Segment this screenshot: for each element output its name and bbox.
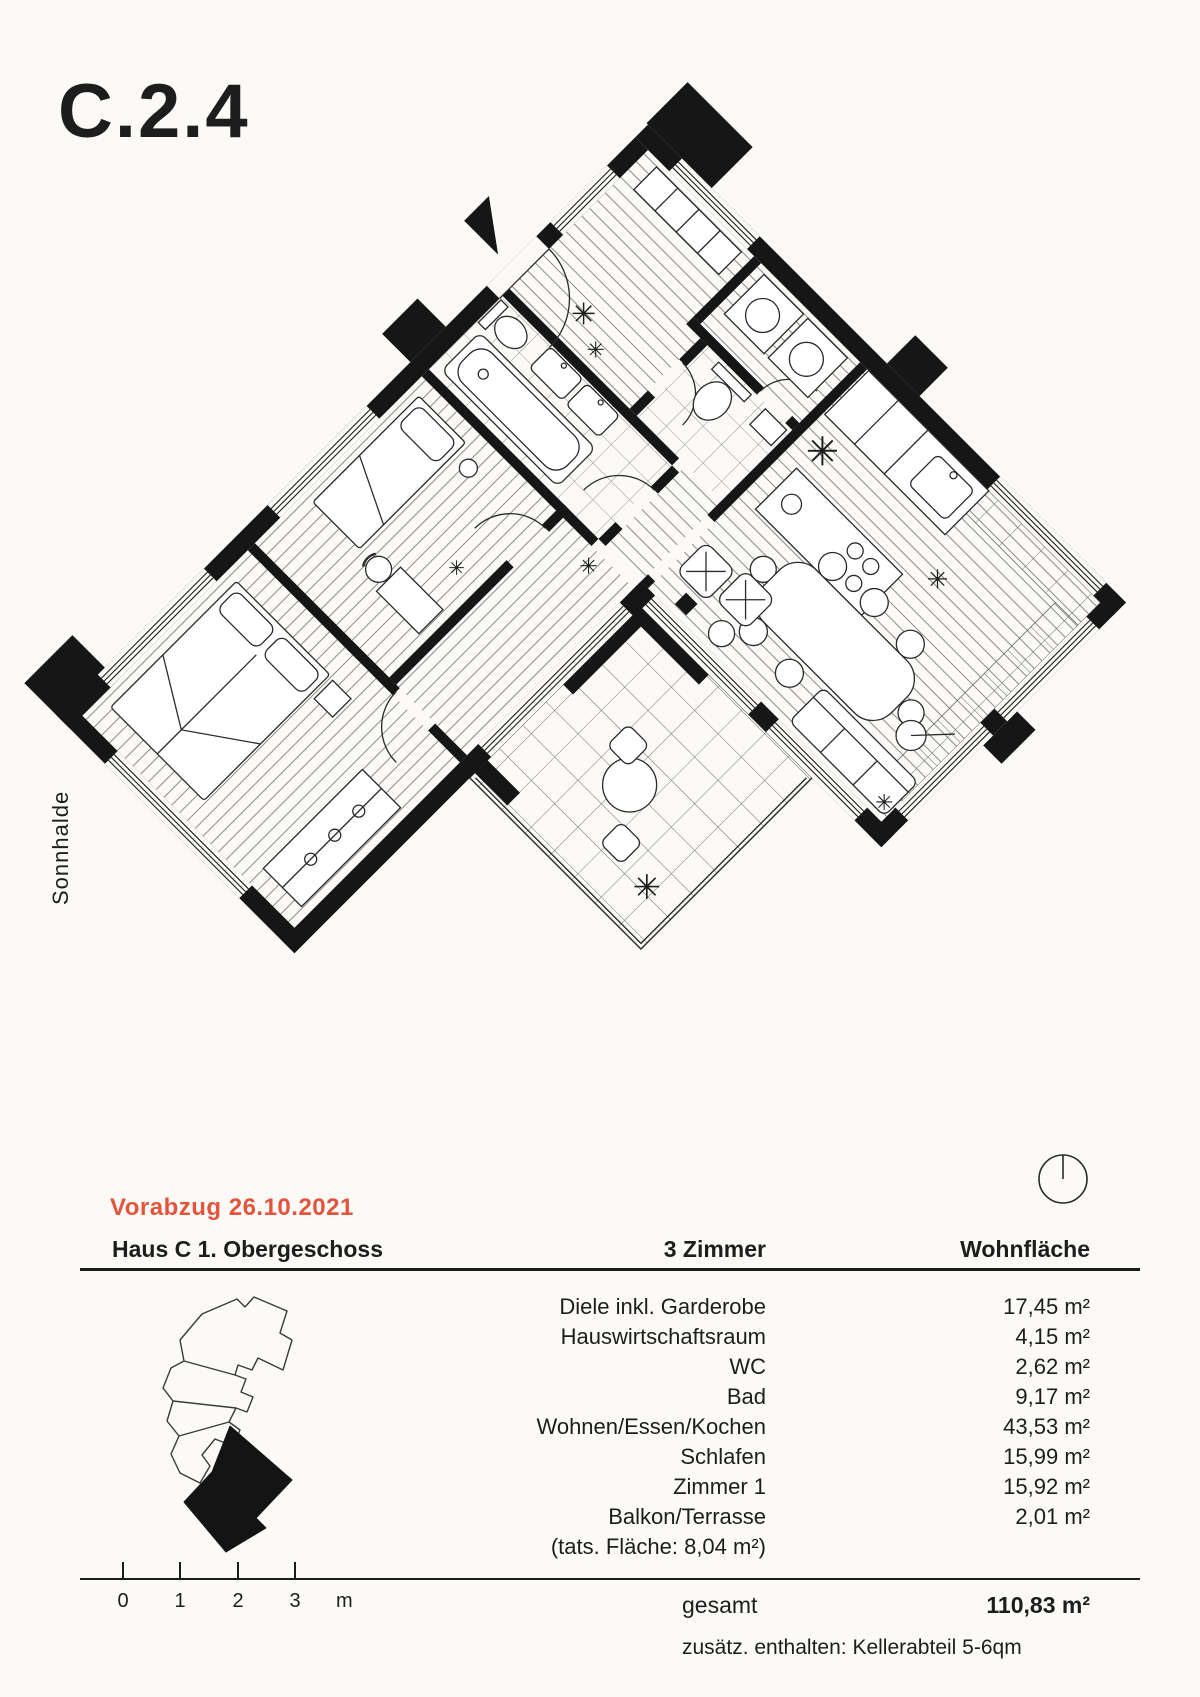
scale-tick bbox=[179, 1562, 181, 1578]
scale-label: 1 bbox=[168, 1590, 192, 1613]
room-row-label: Wohnen/Essen/Kochen bbox=[360, 1414, 766, 1440]
room-row-value: 15,99 m² bbox=[890, 1444, 1090, 1470]
room-row-label: Balkon/Terrasse bbox=[360, 1504, 766, 1530]
scale-label: 2 bbox=[226, 1590, 250, 1613]
scale-unit: m bbox=[336, 1590, 353, 1613]
scale-tick bbox=[122, 1562, 124, 1578]
north-indicator-icon bbox=[1030, 1146, 1100, 1216]
room-row-value: 2,62 m² bbox=[890, 1354, 1090, 1380]
room-row-label: Hauswirtschaftsraum bbox=[360, 1324, 766, 1350]
scale-label: 3 bbox=[283, 1590, 307, 1613]
room-row-value: 43,53 m² bbox=[890, 1414, 1090, 1440]
key-plan bbox=[140, 1278, 350, 1568]
room-row-label: Bad bbox=[360, 1384, 766, 1410]
room-row-label: Zimmer 1 bbox=[360, 1474, 766, 1500]
area-note: (tats. Fläche: 8,04 m²) bbox=[360, 1534, 766, 1560]
scale-tick bbox=[294, 1562, 296, 1578]
room-row-value: 15,92 m² bbox=[890, 1474, 1090, 1500]
entrance-arrow-icon bbox=[464, 196, 523, 255]
rooms-header: 3 Zimmer bbox=[520, 1236, 766, 1263]
key-plan-unit-highlight bbox=[184, 1426, 292, 1552]
total-label: gesamt bbox=[682, 1592, 757, 1619]
scale-bar-line bbox=[80, 1578, 1140, 1580]
header-divider bbox=[80, 1268, 1140, 1271]
room-row-value: 9,17 m² bbox=[890, 1384, 1090, 1410]
room-row-label: Diele inkl. Garderobe bbox=[360, 1294, 766, 1320]
room-row-value: 4,15 m² bbox=[890, 1324, 1090, 1350]
preliminary-stamp: Vorabzug 26.10.2021 bbox=[110, 1194, 354, 1222]
room-row-value: 17,45 m² bbox=[890, 1294, 1090, 1320]
room-row-value: 2,01 m² bbox=[890, 1504, 1090, 1530]
additional-note: zusätz. enthalten: Kellerabteil 5-6qm bbox=[682, 1636, 1022, 1660]
scale-tick bbox=[237, 1562, 239, 1578]
total-value: 110,83 m² bbox=[890, 1592, 1090, 1619]
area-header: Wohnfläche bbox=[790, 1236, 1090, 1263]
room-row-label: WC bbox=[360, 1354, 766, 1380]
room-row-label: Schlafen bbox=[360, 1444, 766, 1470]
scale-label: 0 bbox=[111, 1590, 135, 1613]
floor-plan-drawing: ✳ ✳ ✳ ✳ ✳ ✳ ✳ ✳ bbox=[0, 80, 1200, 1010]
house-header: Haus C 1. Obergeschoss bbox=[112, 1236, 383, 1263]
